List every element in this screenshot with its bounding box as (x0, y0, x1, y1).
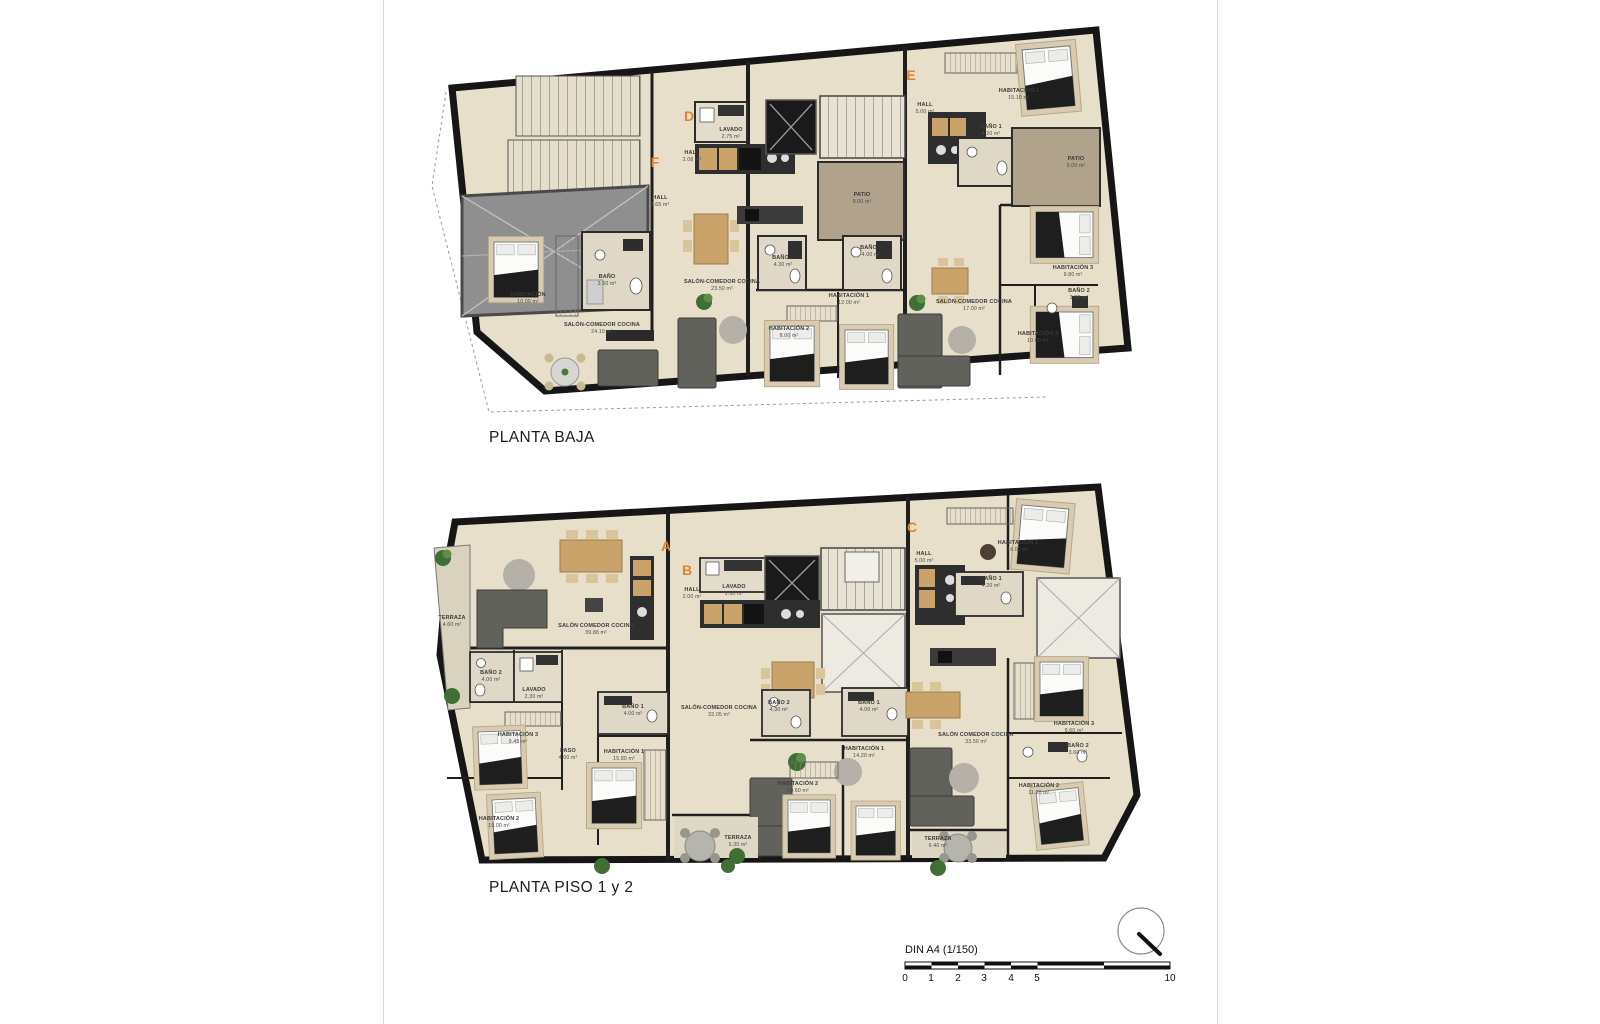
room-label-e-hab1: HABITACIÓN 115.10 m² (999, 88, 1040, 102)
wardrobe (947, 508, 1013, 524)
unit-letter-d: D (684, 108, 694, 124)
light-patio-b (822, 614, 905, 692)
scale-tick-4: 4 (1008, 973, 1014, 984)
unit-letter-a: A (661, 538, 671, 554)
scale-bar (905, 962, 1170, 969)
wardrobe (945, 53, 1017, 73)
sofa (598, 350, 658, 386)
scale-tick-2: 2 (955, 973, 961, 984)
room-label-f-hall: HALL3.65 m² (651, 195, 670, 209)
room-label-b-lavado: LAVADO1.50 m² (722, 584, 745, 598)
plan1-title: PLANTA BAJA (489, 429, 595, 447)
wardrobe (556, 236, 578, 316)
unit-letter-f: F (651, 154, 660, 170)
core-stairs (820, 96, 905, 158)
wardrobe (644, 750, 666, 820)
unit-letter-c: C (907, 519, 917, 535)
unit-letter-b: B (682, 562, 692, 578)
room-label-e-hall: HALL5.00 m² (916, 102, 935, 116)
cabinet (585, 598, 603, 612)
scale-tick-0: 0 (902, 973, 908, 984)
room-label-d-lavado: LAVADO2.75 m² (719, 127, 742, 141)
room-label-a-paso: PASO4.00 m² (559, 748, 578, 762)
floor-plan-page: PLANTA BAJA PLANTA PISO 1 y 2 F D E HALL… (0, 0, 1600, 1024)
north-arrow-icon (1118, 908, 1164, 954)
scale-tick-3: 3 (981, 973, 987, 984)
room-label-c-terraza: TERRAZA6.40 m² (924, 836, 951, 850)
room-label-b-hab2: HABITACIÓN 210.60 m² (778, 781, 819, 795)
room-label-c-salon: SALÓN COMEDOR COCINA33.50 m² (938, 732, 1014, 746)
room-label-e-hab3: HABITACIÓN 39.80 m² (1053, 265, 1094, 279)
room-label-d-salon: SALÓN-COMEDOR COCINA23.50 m² (684, 279, 760, 293)
room-label-e-hab2: HABITACIÓN 210.00 m² (1018, 331, 1059, 345)
room-label-f-bano: BAÑO3.50 m² (598, 274, 617, 288)
scale-tick-10: 10 (1164, 973, 1175, 984)
plant (721, 859, 735, 873)
room-label-b-hall: HALL2.00 m² (683, 587, 702, 601)
room-label-a-terraza: TERRAZA4.60 m² (438, 615, 465, 629)
bath1 (958, 138, 1020, 186)
room-label-b-hab1: HABITACIÓN 114.20 m² (844, 746, 885, 760)
light-patio-c (1037, 578, 1120, 658)
room-label-a-hab1: HABITACIÓN 115.80 m² (604, 749, 645, 763)
rug (719, 316, 747, 344)
room-label-e-patio: PATIO9.00 m² (1067, 156, 1086, 170)
room-label-c-bano1: BAÑO 14.20 m² (980, 576, 1002, 590)
unit-letter-e: E (906, 67, 915, 83)
room-label-d-bano2: BAÑO 24.30 m² (772, 255, 794, 269)
room-label-c-hab2: HABITACIÓN 211.20 m² (1019, 783, 1060, 797)
room-label-e-bano2: BAÑO 23.80 m² (1068, 288, 1090, 302)
dining-table (560, 530, 622, 583)
rug (503, 559, 535, 591)
room-label-a-lavado: LAVADO2.30 m² (522, 687, 545, 701)
wardrobe (505, 712, 561, 726)
wardrobe (1014, 663, 1034, 719)
room-label-a-bano1: BAÑO 14.00 m² (622, 704, 644, 718)
scale-title: DIN A4 (1/150) (905, 944, 978, 956)
sofa (678, 318, 716, 388)
room-label-d-hab2: HABITACIÓN 28.00 m² (769, 326, 810, 340)
unit-d-furniture (678, 96, 905, 389)
room-label-e-bano1: BAÑO 14.20 m² (980, 124, 1002, 138)
room-label-f-salon: SALÓN-COMEDOR COCINA24.10 m² (564, 322, 640, 336)
patio-e (1012, 128, 1100, 206)
elevator (766, 100, 816, 154)
room-label-a-hab3: HABITACIÓN 39.45 m² (498, 732, 539, 746)
kitchen (700, 600, 820, 628)
room-label-d-patio: PATIO9.00 m² (853, 192, 872, 206)
scale-tick-1: 1 (928, 973, 934, 984)
room-label-a-salon: SALÓN COMEDOR COCINA39.88 m² (558, 623, 634, 637)
rug (948, 326, 976, 354)
plant (930, 860, 946, 876)
room-label-c-hab3: HABITACIÓN 39.60 m² (1054, 721, 1095, 735)
plan2-title: PLANTA PISO 1 y 2 (489, 879, 633, 897)
floor-plan-drawing (0, 0, 1600, 1024)
wardrobe (790, 762, 838, 778)
plant (444, 688, 460, 704)
room-label-c-hab1: HABITACIÓN 116.00 m² (998, 540, 1039, 554)
wardrobe (787, 306, 837, 321)
room-label-b-bano1: BAÑO 14.00 m² (858, 700, 880, 714)
room-label-a-hab2: HABITACIÓN 219.00 m² (479, 816, 520, 830)
room-label-b-terraza: TERRAZA5.30 m² (724, 835, 751, 849)
room-label-c-hall: HALL5.00 m² (915, 551, 934, 565)
room-label-d-hab1: HABITACIÓN 112.00 m² (829, 293, 870, 307)
rug (949, 763, 979, 793)
room-label-a-bano2: BAÑO 24.00 m² (480, 670, 502, 684)
plant (594, 858, 610, 874)
room-label-c-bano2: BAÑO 23.60 m² (1067, 743, 1089, 757)
room-label-b-bano2: BAÑO 24.30 m² (768, 700, 790, 714)
room-label-d-hall: HALL2.08 m² (683, 150, 702, 164)
scale-tick-5: 5 (1034, 973, 1040, 984)
core-stairs (821, 548, 905, 610)
room-label-b-salon: SALÓN-COMEDOR COCINA32.05 m² (681, 705, 757, 719)
pouf (980, 544, 996, 560)
room-label-e-salon: SALÓN-COMEDOR COCINA17.00 m² (936, 299, 1012, 313)
room-label-f-habitacion: HABITACIÓN10.00 m² (510, 292, 546, 306)
room-label-d-bano1: BAÑO 14.00 m² (860, 245, 882, 259)
